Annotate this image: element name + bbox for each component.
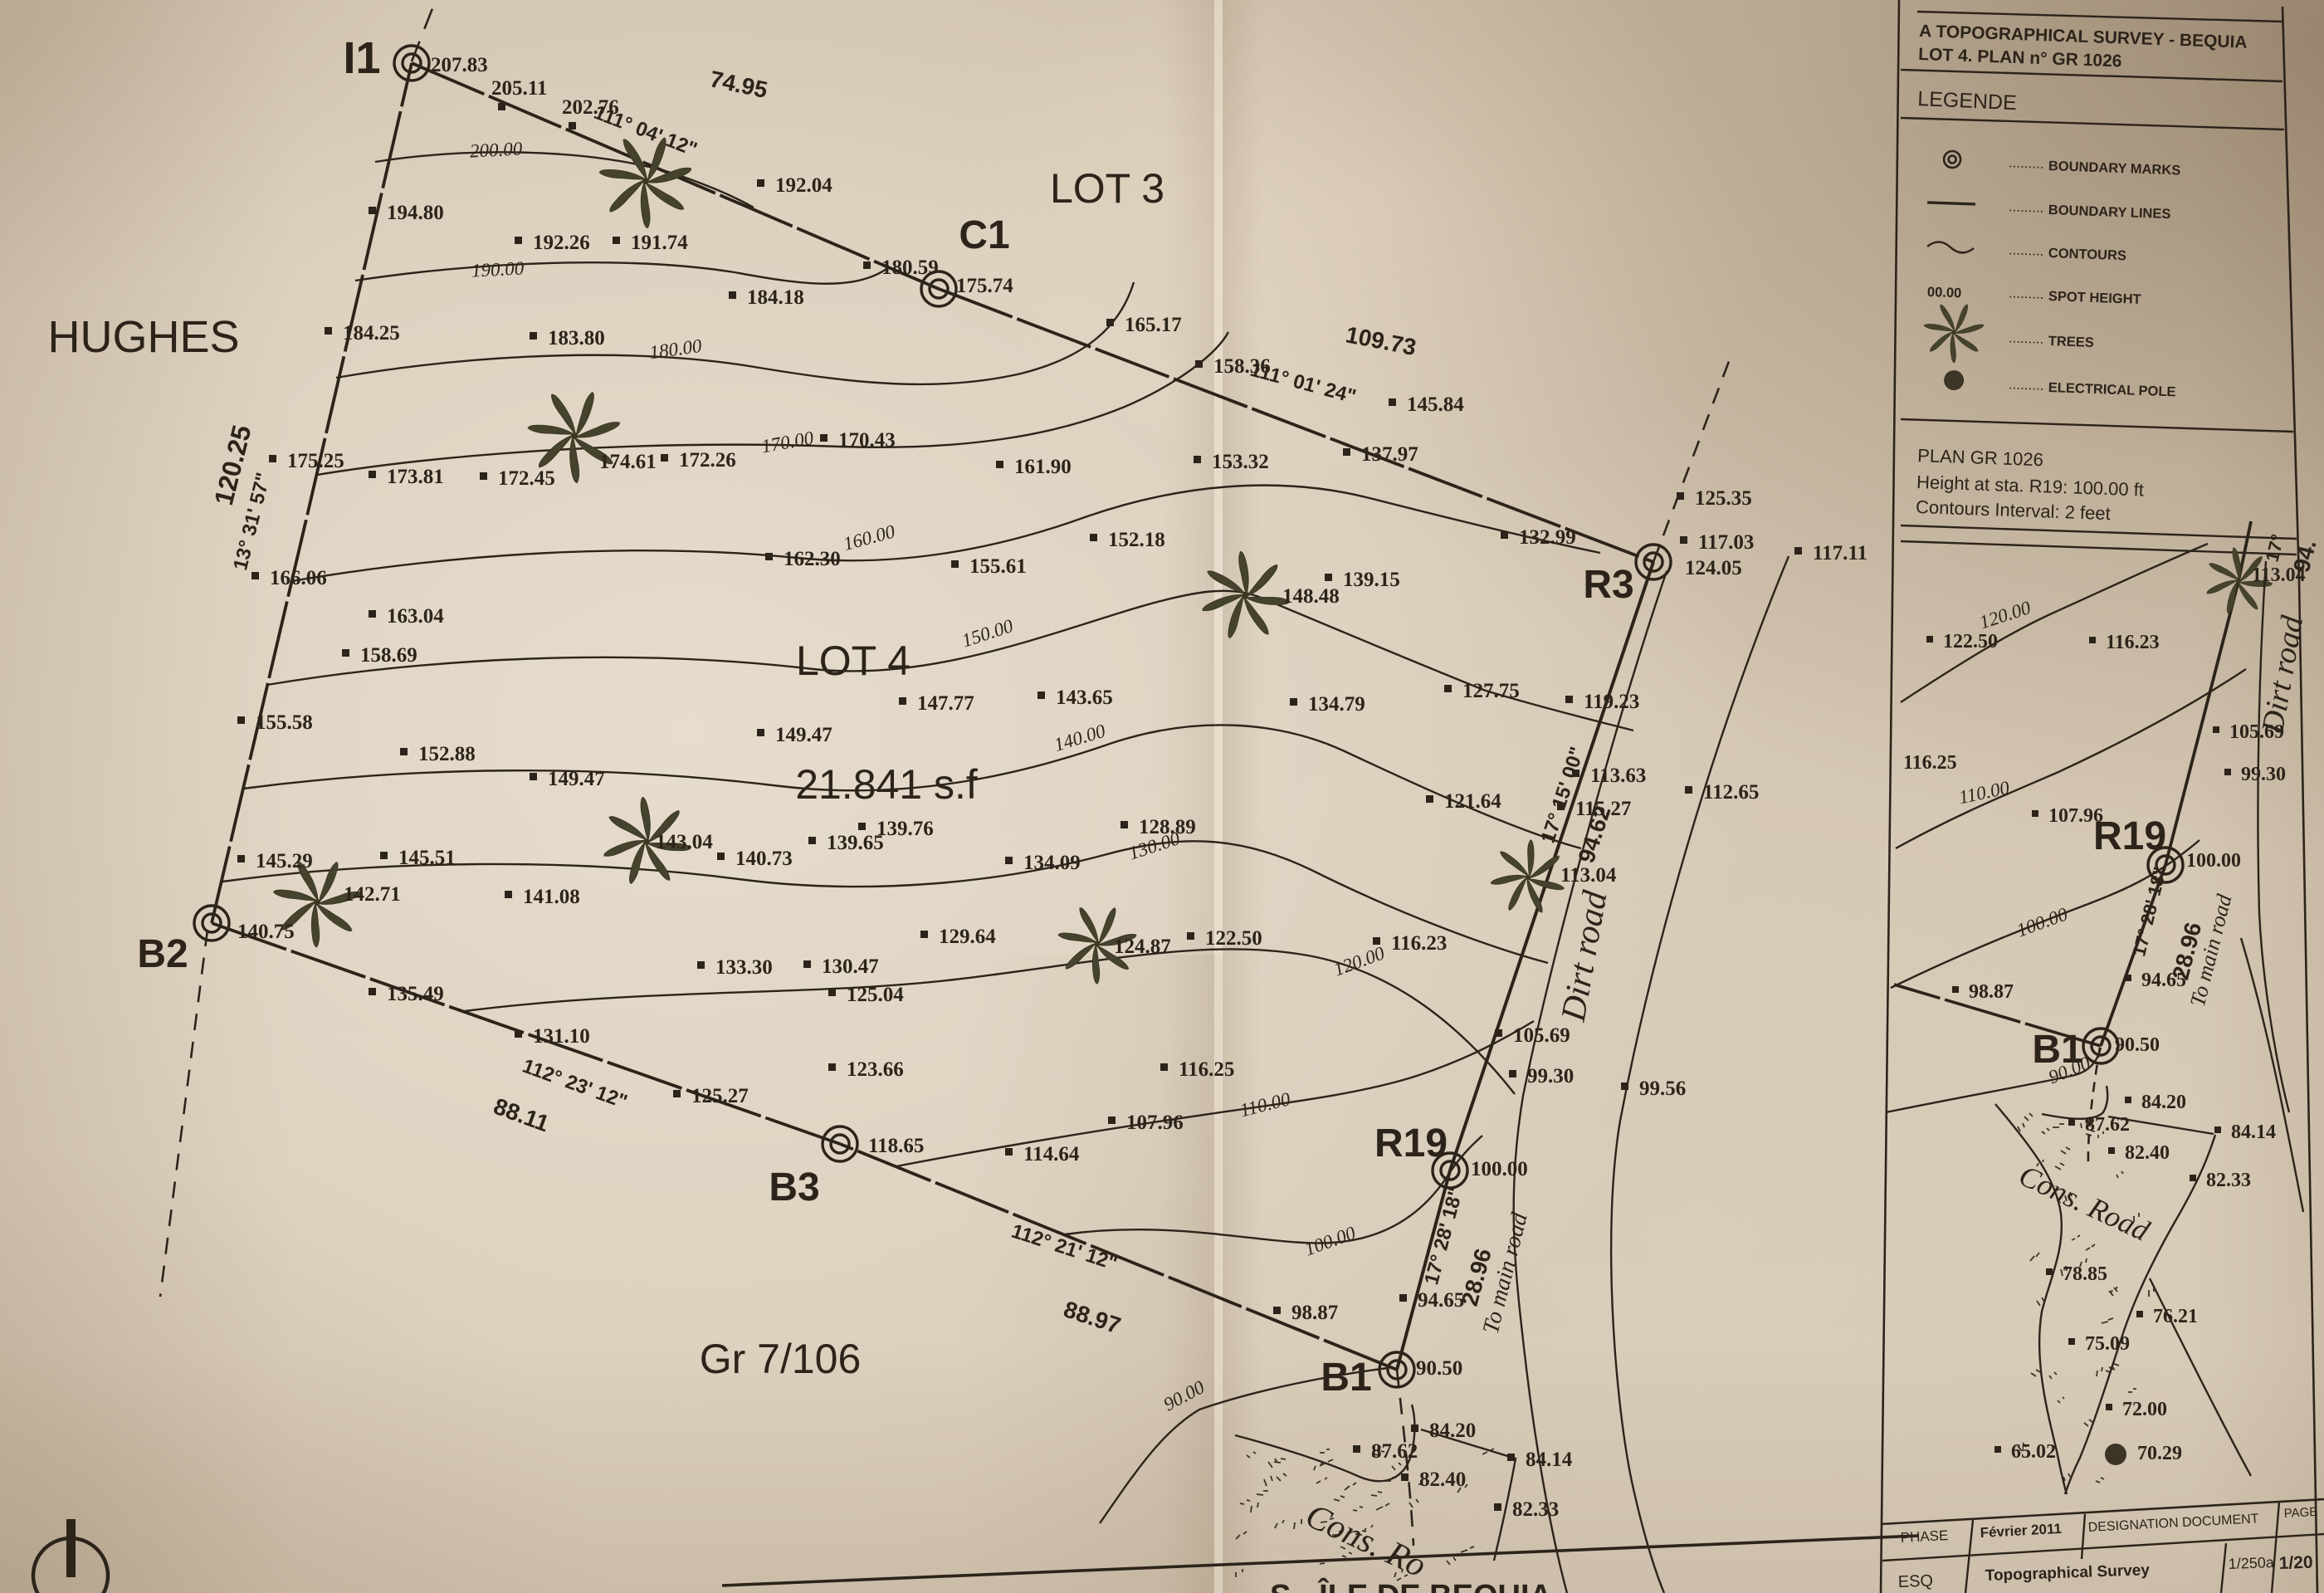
svg-text:117.03: 117.03 [1698,531,1754,554]
svg-text:1/20: 1/20 [2278,1553,2313,1573]
svg-text:S - ÎLE DE BEQUIA: S - ÎLE DE BEQUIA [1270,1577,1552,1593]
svg-text:00.00: 00.00 [1927,285,1962,301]
svg-text:191.74: 191.74 [631,232,688,254]
svg-text:84.20: 84.20 [1429,1420,1476,1442]
svg-text:145.29: 145.29 [256,850,313,872]
svg-text:82.33: 82.33 [2206,1170,2251,1191]
svg-text:99.56: 99.56 [1639,1077,1686,1100]
svg-text:184.18: 184.18 [747,286,804,309]
svg-text:116.25: 116.25 [1903,752,1957,774]
svg-text:.........: ......... [2009,198,2044,215]
svg-text:CONTOURS: CONTOURS [2048,246,2127,263]
svg-text:ESQ: ESQ [1897,1572,1933,1591]
svg-text:21.841 s.f: 21.841 s.f [795,761,978,808]
svg-text:R3: R3 [1583,563,1633,607]
svg-text:R19: R19 [2093,814,2166,858]
svg-text:129.64: 129.64 [939,926,996,948]
svg-text:147.77: 147.77 [917,692,974,715]
svg-text:152.18: 152.18 [1108,529,1165,551]
svg-text:76.21: 76.21 [2153,1306,2198,1327]
svg-text:194.80: 194.80 [387,202,444,224]
svg-text:127.75: 127.75 [1462,680,1520,702]
svg-text:139.76: 139.76 [876,818,934,840]
svg-text:99.30: 99.30 [2241,764,2286,785]
svg-text:94.65: 94.65 [2141,970,2186,991]
svg-text:165.17: 165.17 [1125,314,1182,336]
svg-text:PHASE: PHASE [1900,1527,1949,1546]
svg-text:R19: R19 [1374,1121,1448,1165]
svg-text:130.47: 130.47 [822,955,879,978]
svg-text:105.69: 105.69 [2229,721,2284,743]
svg-text:183.80: 183.80 [548,327,605,349]
svg-text:125.04: 125.04 [847,984,904,1006]
svg-text:90.50: 90.50 [2115,1034,2160,1056]
svg-text:70.29: 70.29 [2137,1443,2182,1464]
svg-text:163.04: 163.04 [387,605,444,628]
svg-text:143.65: 143.65 [1056,687,1113,709]
svg-text:173.81: 173.81 [387,466,444,488]
svg-text:LOT 3: LOT 3 [1050,165,1164,212]
svg-text:172.45: 172.45 [498,467,555,490]
svg-text:135.49: 135.49 [387,983,444,1005]
svg-text:.........: ......... [2009,285,2044,301]
svg-text:84.14: 84.14 [2231,1121,2276,1143]
svg-text:132.99: 132.99 [1519,526,1576,549]
svg-text:113.04: 113.04 [2252,564,2306,586]
svg-text:Gr 7/106: Gr 7/106 [700,1336,862,1382]
svg-text:155.58: 155.58 [256,711,313,734]
svg-text:124.05: 124.05 [1685,557,1742,579]
svg-text:134.09: 134.09 [1023,852,1081,874]
svg-text:PLAN GR 1026: PLAN GR 1026 [1917,445,2043,470]
svg-text:117.11: 117.11 [1813,542,1867,564]
svg-text:65.02: 65.02 [2011,1441,2056,1463]
svg-text:137.97: 137.97 [1361,443,1418,466]
svg-text:B2: B2 [137,932,188,976]
svg-text:82.40: 82.40 [2125,1142,2170,1164]
svg-text:124.87: 124.87 [1114,936,1171,958]
svg-text:128.89: 128.89 [1139,816,1196,838]
svg-text:112.65: 112.65 [1703,781,1759,804]
svg-text:149.47: 149.47 [548,768,605,790]
svg-text:82.40: 82.40 [1419,1468,1466,1491]
svg-text:131.10: 131.10 [533,1025,590,1048]
svg-text:170.43: 170.43 [838,429,896,452]
svg-text:125.27: 125.27 [691,1085,749,1107]
svg-text:84.14: 84.14 [1526,1449,1573,1471]
svg-text:122.50: 122.50 [1205,927,1262,950]
svg-text:100.00: 100.00 [1471,1158,1528,1180]
svg-text:123.66: 123.66 [847,1058,904,1081]
svg-text:175.25: 175.25 [287,450,344,472]
svg-text:114.64: 114.64 [1023,1143,1080,1165]
svg-text:140.75: 140.75 [237,921,295,943]
svg-text:141.08: 141.08 [523,886,580,908]
svg-text:99.30: 99.30 [1527,1065,1574,1087]
svg-text:122.50: 122.50 [1943,631,1998,652]
svg-text:116.23: 116.23 [1391,932,1447,955]
svg-text:172.26: 172.26 [679,449,736,472]
svg-text:87.62: 87.62 [1371,1440,1418,1463]
svg-text:175.74: 175.74 [956,275,1013,297]
svg-text:158.36: 158.36 [1213,355,1271,378]
svg-text:75.09: 75.09 [2085,1333,2130,1355]
svg-text:119.23: 119.23 [1584,691,1639,713]
svg-text:.........: ......... [2009,242,2044,258]
svg-text:192.04: 192.04 [775,174,832,197]
svg-text:174.61: 174.61 [599,451,657,473]
svg-text:.........: ......... [2009,154,2044,171]
svg-text:200.00: 200.00 [469,138,523,161]
svg-text:98.87: 98.87 [1969,981,2014,1003]
svg-text:PAGE: PAGE [2283,1505,2317,1521]
svg-text:145.84: 145.84 [1407,393,1464,416]
svg-text:153.32: 153.32 [1212,451,1269,473]
svg-text:149.47: 149.47 [775,724,832,746]
svg-text:HUGHES: HUGHES [47,312,239,362]
svg-text:LOT 4: LOT 4 [796,638,911,684]
svg-text:98.87: 98.87 [1291,1302,1338,1324]
svg-text:B1: B1 [1321,1356,1371,1400]
svg-text:207.83: 207.83 [431,54,488,76]
svg-text:148.48: 148.48 [1282,585,1340,608]
svg-text:72.00: 72.00 [2122,1399,2167,1420]
svg-text:192.26: 192.26 [533,232,590,254]
svg-text:94.65: 94.65 [1418,1289,1464,1312]
svg-text:105.69: 105.69 [1513,1024,1570,1047]
svg-text:LEGENDE: LEGENDE [1917,87,2018,115]
svg-text:82.33: 82.33 [1512,1498,1559,1521]
svg-text:B3: B3 [769,1165,819,1209]
svg-text:C1: C1 [959,213,1009,257]
svg-text:TREES: TREES [2048,334,2095,350]
svg-text:205.11: 205.11 [491,77,547,100]
svg-text:139.15: 139.15 [1343,569,1400,591]
svg-text:158.69: 158.69 [360,644,417,667]
svg-text:107.96: 107.96 [1126,1112,1184,1134]
svg-text:166.06: 166.06 [270,567,327,589]
svg-text:125.35: 125.35 [1695,487,1752,510]
svg-text:133.30: 133.30 [715,956,773,979]
svg-text:184.25: 184.25 [343,322,400,344]
svg-text:145.51: 145.51 [398,847,456,869]
svg-text:84.20: 84.20 [2141,1092,2186,1113]
svg-text:115.27: 115.27 [1575,798,1631,820]
svg-text:113.04: 113.04 [1560,864,1617,887]
svg-text:.........: ......... [2009,330,2044,346]
svg-text:78.85: 78.85 [2063,1263,2107,1285]
svg-text:90.50: 90.50 [1416,1357,1462,1380]
svg-text:118.65: 118.65 [868,1135,924,1157]
svg-text:152.88: 152.88 [418,743,476,765]
svg-text:1/250a: 1/250a [2228,1554,2275,1572]
svg-text:113.63: 113.63 [1590,765,1646,787]
svg-text:140.73: 140.73 [735,848,793,870]
svg-text:107.96: 107.96 [2048,805,2103,827]
svg-text:162.30: 162.30 [784,548,841,570]
svg-text:116.25: 116.25 [1179,1058,1234,1081]
svg-text:.........: ......... [2009,376,2044,393]
svg-text:121.64: 121.64 [1444,790,1501,813]
svg-text:180.59: 180.59 [881,257,939,279]
svg-text:161.90: 161.90 [1014,456,1072,478]
svg-text:134.79: 134.79 [1308,693,1365,716]
svg-text:I1: I1 [343,33,380,83]
svg-text:100.00: 100.00 [2186,850,2241,872]
svg-text:139.65: 139.65 [827,832,884,854]
svg-text:87.62: 87.62 [2085,1114,2130,1136]
svg-text:142.71: 142.71 [344,883,401,906]
svg-text:143.04: 143.04 [656,831,713,853]
svg-text:202.76: 202.76 [562,96,619,119]
svg-text:190.00: 190.00 [471,257,525,281]
svg-text:155.61: 155.61 [969,555,1027,578]
svg-text:116.23: 116.23 [2106,632,2160,653]
